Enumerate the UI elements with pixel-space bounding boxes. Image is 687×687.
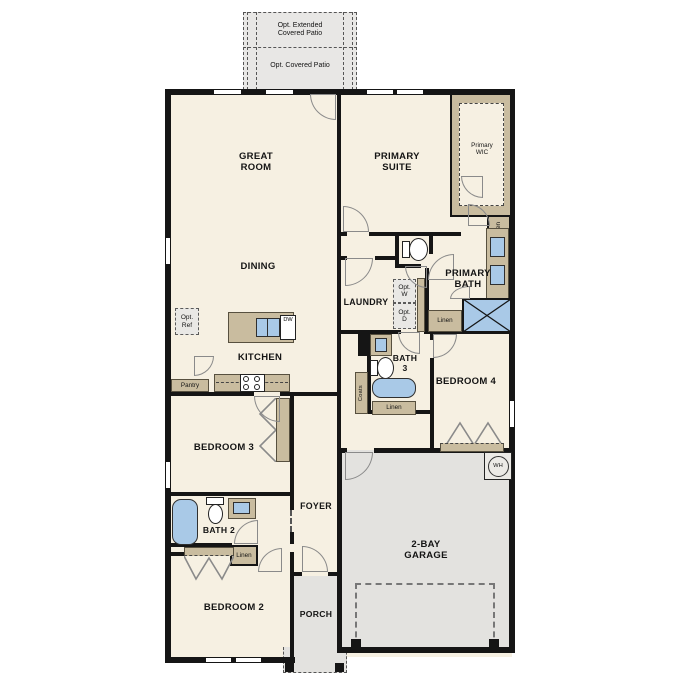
burner xyxy=(254,384,260,390)
foyer-label: FOYER xyxy=(296,501,336,511)
wall-bottom-garage xyxy=(337,647,515,653)
burner xyxy=(243,384,249,390)
porch-label: PORCH xyxy=(296,610,336,620)
floor-plan: Opt. Extended Covered Patio Opt. Covered… xyxy=(0,0,687,687)
wall-foyer-bottom-b xyxy=(328,572,342,576)
wall-suite-bottom-b xyxy=(369,232,461,236)
great-room-label: GREAT ROOM xyxy=(216,152,296,174)
garage-label: 2-BAY GARAGE xyxy=(386,540,466,562)
linen-closet-primary-bath: Linen xyxy=(428,310,462,332)
garage-door-outline xyxy=(355,583,495,647)
wall-plumbing-chunk xyxy=(358,330,370,356)
coats-label: Coats xyxy=(358,385,364,401)
wall-bed2-right xyxy=(290,552,294,657)
wall-greatroom-suite xyxy=(337,92,341,236)
linen-label: Linen xyxy=(437,317,452,324)
wall-bed2-top-a xyxy=(168,552,184,556)
opt-ref-label: Opt. Ref xyxy=(181,314,193,328)
window xyxy=(366,89,394,95)
dining-label: DINING xyxy=(218,262,298,273)
pantry-shelf: Pantry xyxy=(171,379,209,392)
opt-washer-label: Opt. W xyxy=(398,284,410,298)
linen-closet-bath2: Linen xyxy=(230,545,258,566)
burner xyxy=(243,376,249,382)
pantry-label: Pantry xyxy=(181,382,199,389)
bath2-label: BATH 2 xyxy=(199,526,239,536)
toilet-bowl xyxy=(409,238,428,261)
window xyxy=(265,89,294,95)
sink-basin xyxy=(233,502,250,514)
patio-extended-label: Opt. Extended Covered Patio xyxy=(252,22,348,38)
patio-covered-label: Opt. Covered Patio xyxy=(252,62,348,70)
window xyxy=(509,400,515,428)
linen-closet-bath3: Linen xyxy=(372,401,416,415)
sink-basin xyxy=(490,237,505,257)
dishwasher-label: DW xyxy=(283,317,292,323)
dishwasher: DW xyxy=(280,315,296,340)
window xyxy=(165,461,171,489)
burner xyxy=(254,376,260,382)
linen-label: Linen xyxy=(386,404,401,411)
wall-bath2-top xyxy=(168,492,294,496)
bedroom4-label: BEDROOM 4 xyxy=(426,377,506,388)
toilet-bowl xyxy=(208,504,223,524)
kitchen-sink-divider xyxy=(267,319,268,336)
garage-door-stub-right xyxy=(489,639,499,647)
kitchen-label: KITCHEN xyxy=(220,353,300,364)
wall-foyer-west-b xyxy=(290,532,294,544)
linen-label: Linen xyxy=(236,552,251,559)
window xyxy=(235,657,262,663)
bedroom3-label: BEDROOM 3 xyxy=(184,443,264,454)
sink-basin xyxy=(375,338,387,352)
primary-wic-label: Primary WIC xyxy=(461,142,503,156)
window xyxy=(213,89,242,95)
bed2-closet-doors xyxy=(184,556,234,582)
bed4-closet-shelf xyxy=(440,443,504,452)
wall-kitchen-bottom-b xyxy=(280,392,340,396)
optional-refrigerator: Opt. Ref xyxy=(175,308,199,335)
wall-spine-dining xyxy=(337,232,341,334)
window xyxy=(165,237,171,265)
wall-garage-left xyxy=(337,448,342,647)
shower-fixture xyxy=(462,298,512,333)
opt-dryer-label: Opt. D xyxy=(398,309,410,323)
laundry-label: LAUNDRY xyxy=(331,297,401,307)
garage-door-stub-left xyxy=(351,639,361,647)
wall-laundry-top-b xyxy=(375,256,395,260)
water-heater: WH xyxy=(484,452,512,480)
kitchen-sink xyxy=(256,318,280,337)
water-heater-circle: WH xyxy=(488,456,509,477)
bed2-closet-shelf xyxy=(184,547,234,556)
bathtub xyxy=(172,499,198,545)
bath3-label: BATH 3 xyxy=(390,354,420,374)
window xyxy=(396,89,424,95)
water-heater-label: WH xyxy=(493,463,503,469)
porch-post-left xyxy=(285,663,294,672)
wall-left xyxy=(165,89,171,663)
wall-foyer-opening-dashed xyxy=(290,510,292,532)
coats-closet: Coats xyxy=(355,372,368,414)
porch-post-right xyxy=(335,663,344,672)
wall-bed4-left-b xyxy=(430,358,434,450)
primary-bath-label: PRIMARY BATH xyxy=(438,269,498,291)
window xyxy=(205,657,232,663)
patio-divider xyxy=(243,47,357,48)
bathtub xyxy=(372,378,416,398)
wall-wc-right xyxy=(429,236,433,254)
bedroom2-label: BEDROOM 2 xyxy=(194,603,274,614)
wall-kitchen-bottom-a xyxy=(168,392,254,396)
wall-spine-hall xyxy=(337,334,341,448)
primary-suite-label: PRIMARY SUITE xyxy=(357,152,437,174)
